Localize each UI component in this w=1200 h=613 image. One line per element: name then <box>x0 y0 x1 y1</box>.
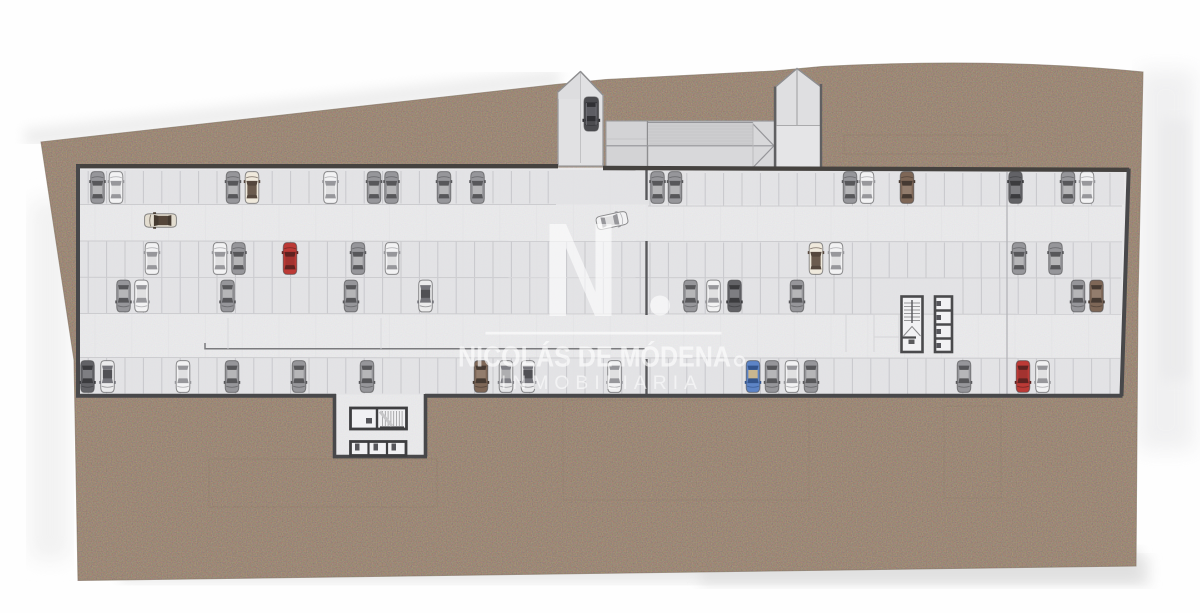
svg-text:INMOBILIARIA: INMOBILIARIA <box>501 373 703 394</box>
svg-text:NICOLÁS DE MÓDENA: NICOLÁS DE MÓDENA <box>458 339 731 373</box>
